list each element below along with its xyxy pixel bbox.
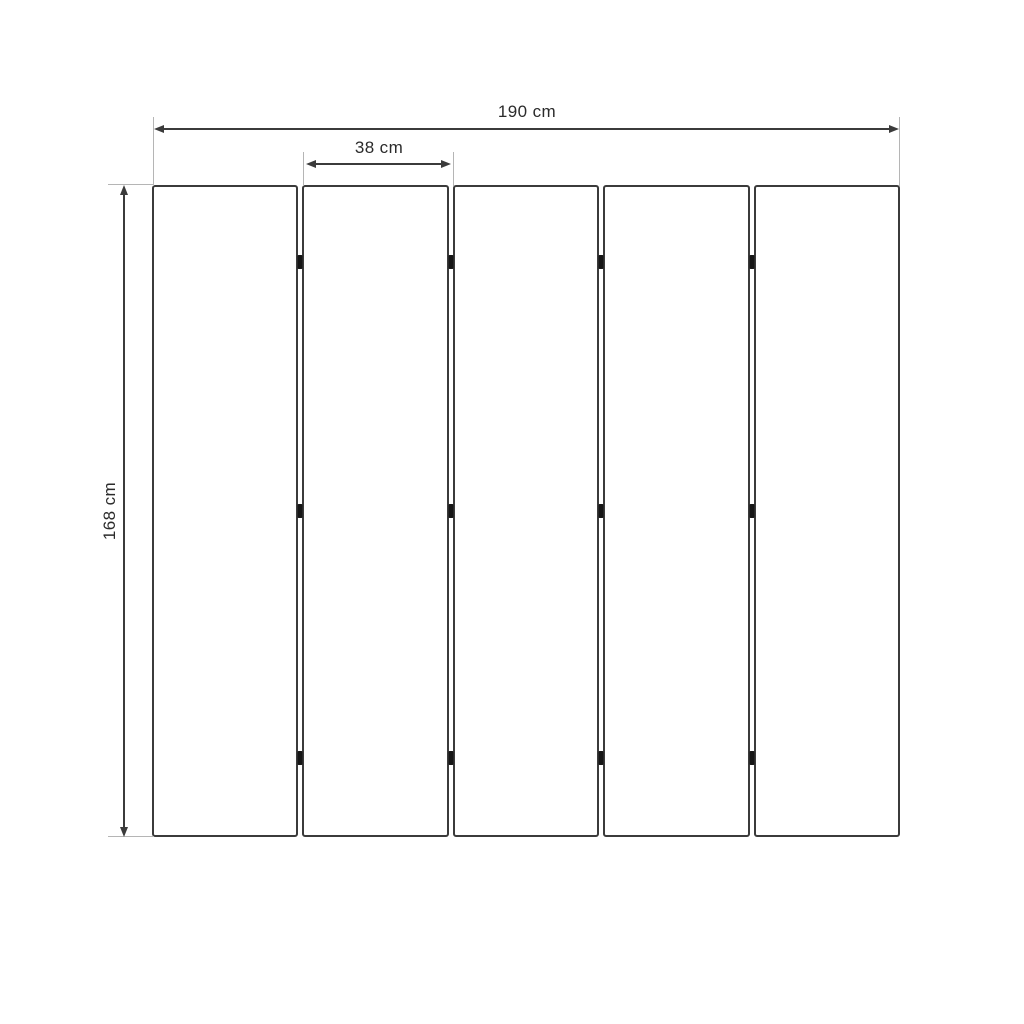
panel bbox=[302, 185, 448, 837]
panel bbox=[453, 185, 599, 837]
height-label: 168 cm bbox=[100, 482, 120, 540]
arrowhead-left-icon bbox=[306, 160, 316, 168]
dimension-line-panel-width bbox=[311, 163, 446, 165]
panel bbox=[603, 185, 749, 837]
panel-strip bbox=[152, 185, 900, 837]
height-label-box: 168 cm bbox=[85, 185, 135, 837]
extension-line-total-right bbox=[899, 117, 900, 186]
panel-width-label: 38 cm bbox=[304, 138, 454, 158]
arrowhead-left-icon bbox=[154, 125, 164, 133]
arrowhead-right-icon bbox=[889, 125, 899, 133]
panel bbox=[152, 185, 298, 837]
diagram-canvas: 190 cm 38 cm 168 cm bbox=[0, 0, 1024, 1024]
panel bbox=[754, 185, 900, 837]
total-width-label: 190 cm bbox=[154, 102, 900, 122]
dimension-line-total-width bbox=[158, 128, 894, 130]
arrowhead-right-icon bbox=[441, 160, 451, 168]
